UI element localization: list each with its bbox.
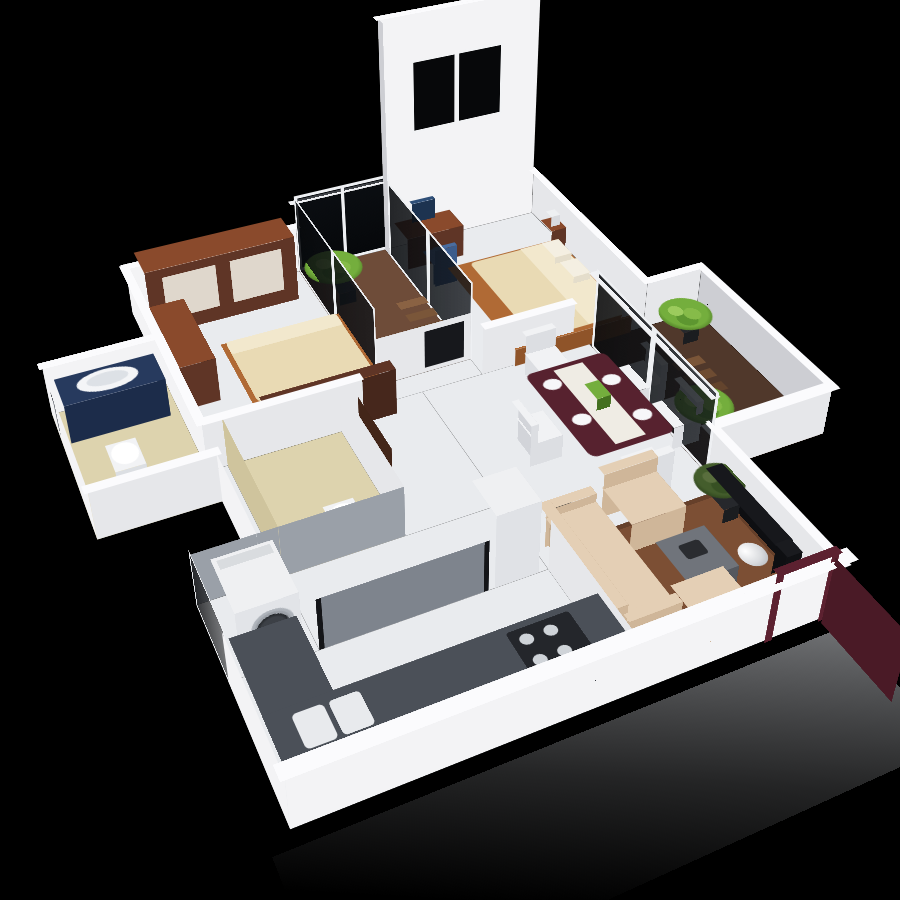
wardrobe-front-wpanel — [229, 248, 284, 302]
perspective-wrapper — [0, 0, 900, 900]
bedroom2-tall-wall-win — [411, 42, 504, 133]
balcony1-south-wall-tvp — [424, 321, 464, 368]
render-canvas — [0, 0, 900, 900]
